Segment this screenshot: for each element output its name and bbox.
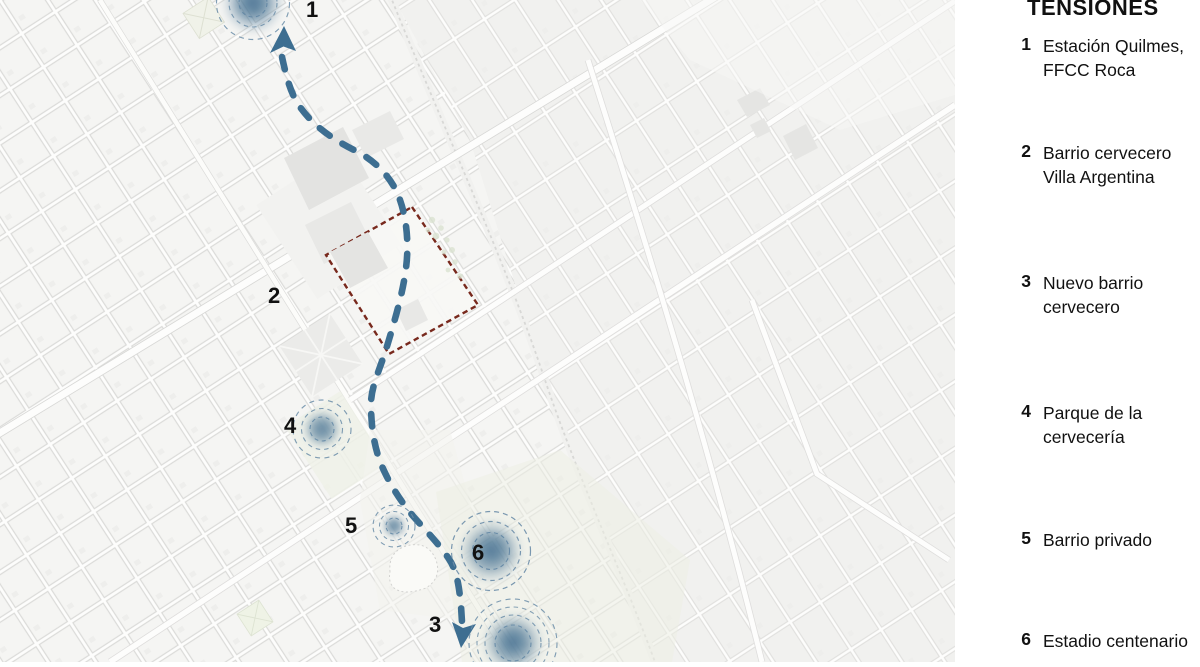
svg-text:4: 4 <box>284 413 297 438</box>
svg-text:3: 3 <box>429 612 441 637</box>
svg-text:2: 2 <box>268 283 280 308</box>
svg-text:6: 6 <box>472 540 484 565</box>
svg-text:5: 5 <box>345 513 357 538</box>
svg-text:1: 1 <box>306 0 318 22</box>
